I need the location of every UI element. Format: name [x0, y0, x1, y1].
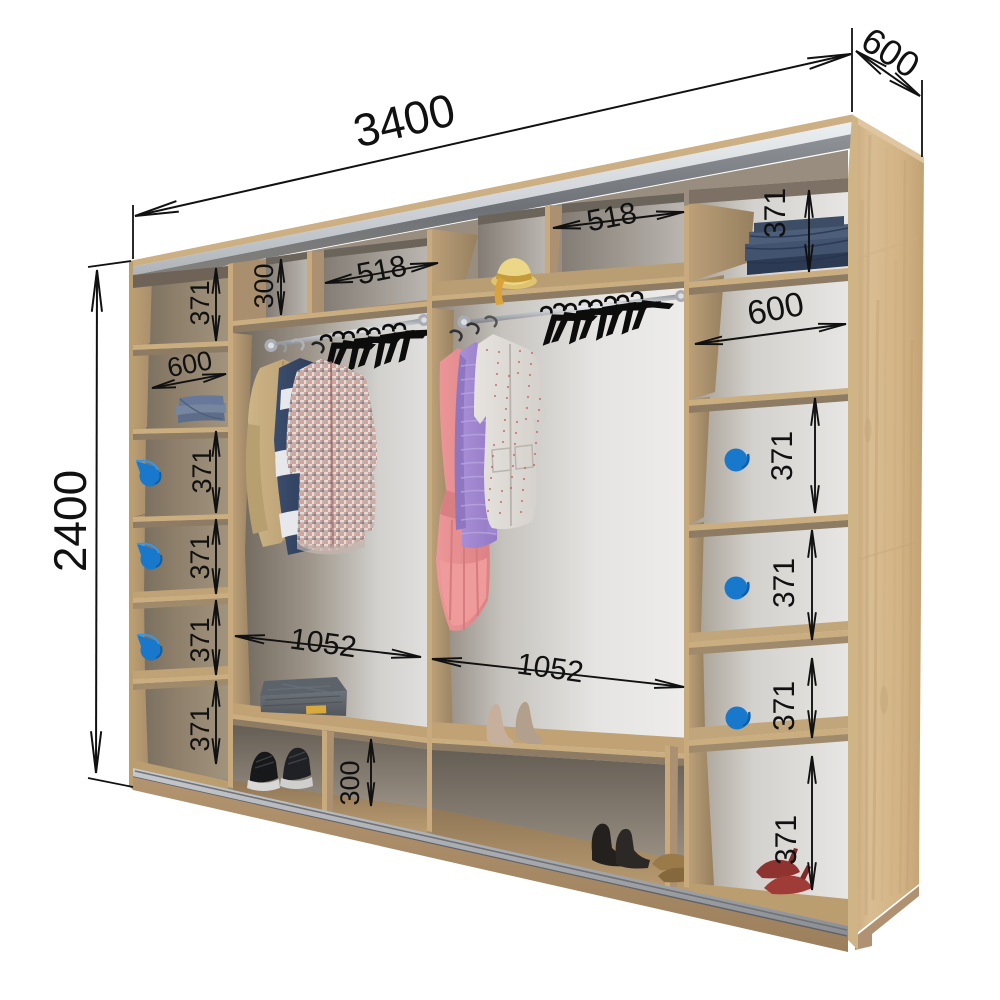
svg-text:371: 371 [759, 188, 792, 238]
svg-text:371: 371 [185, 706, 215, 751]
svg-text:371: 371 [770, 815, 803, 865]
svg-text:2400: 2400 [44, 470, 96, 572]
svg-text:371: 371 [185, 617, 215, 662]
svg-text:371: 371 [766, 431, 799, 481]
svg-text:371: 371 [768, 558, 801, 608]
svg-text:371: 371 [185, 534, 215, 579]
svg-text:300: 300 [249, 263, 279, 308]
svg-text:300: 300 [335, 760, 365, 805]
svg-text:371: 371 [768, 681, 801, 731]
svg-text:371: 371 [185, 280, 215, 325]
